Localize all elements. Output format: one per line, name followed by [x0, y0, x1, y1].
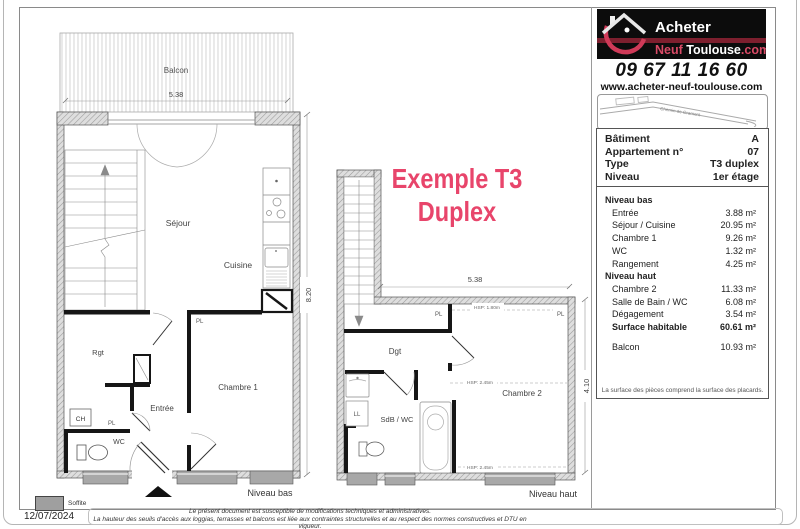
info-niveau-value: 1er étage [713, 171, 759, 184]
legal-disclaimer: Le présent document est susceptible de m… [90, 508, 530, 529]
dim-balcony-width: 5.38 [169, 90, 184, 99]
dim-top-haut-label: 5.38 [468, 275, 483, 284]
ch-label: CH [76, 416, 86, 423]
balcony-label: Balcon [164, 66, 188, 75]
niveau-bas-caption: Niveau bas [247, 488, 293, 498]
info-appartement-label: Appartement n° [605, 146, 683, 159]
section-niveau-haut: Niveau haut [605, 270, 756, 283]
balcony-area: Balcon 5.38 [60, 33, 293, 112]
ll-label: LL [354, 412, 361, 418]
entree-label: Entrée [150, 404, 174, 413]
hsp-1-label: HSP: 2.45m [467, 380, 493, 386]
row-sejour-label: Séjour / Cuisine [612, 219, 676, 232]
logo-acheter: Acheter [655, 19, 711, 36]
row-degagement-label: Dégagement [612, 308, 664, 321]
location-map: Chemin de Gramont [597, 94, 768, 130]
row-balcon-value: 10.93 m² [720, 341, 756, 354]
entrance-arrow [145, 486, 172, 497]
wc-fixtures [77, 445, 108, 460]
disclaimer-line2: La hauteur des seuils d'accès aux loggia… [90, 516, 530, 529]
logo-dotcom: .com [741, 43, 766, 57]
row-chambre2-value: 11.33 m² [721, 283, 756, 296]
plan-title-line2: Duplex [390, 195, 524, 228]
pl-right-label: PL [557, 312, 565, 318]
agency-logo[interactable]: Acheter Neuf Toulouse.com [597, 9, 766, 59]
dim-height-label: 8.20 [304, 288, 313, 303]
phone-number[interactable]: 09 67 11 16 60 [597, 60, 766, 82]
soffite-label: Soffite [68, 500, 86, 507]
shaft [134, 355, 150, 383]
document-date: 12/07/2024 [24, 511, 74, 522]
row-chambre1-value: 9.26 m² [725, 232, 756, 245]
sdb-label: SdB / WC [381, 415, 415, 424]
wc-label: WC [113, 439, 125, 446]
interior-doors-haut [384, 336, 474, 395]
floorplan-sheet: Balcon 5.38 [0, 0, 800, 529]
hsp-low-label: HSP: 1.80m [474, 305, 500, 311]
info-batiment-value: A [751, 133, 759, 146]
chambre1-label: Chambre 1 [218, 383, 258, 392]
dgt-label: Dgt [389, 347, 402, 356]
svg-text:Neuf Toulouse.com: Neuf Toulouse.com [655, 43, 766, 57]
row-chambre2-label: Chambre 2 [612, 283, 657, 296]
disclaimer-line1: Le présent document est susceptible de m… [90, 508, 530, 516]
sejour-label: Séjour [166, 218, 191, 228]
soffite-blocks [83, 471, 293, 484]
kitchen-fixtures [263, 168, 290, 288]
row-entree-value: 3.88 m² [725, 207, 756, 220]
pl-wc-label: PL [108, 421, 116, 427]
kitchen-duct [262, 290, 292, 312]
map-road-label: Chemin de Gramont [660, 106, 702, 117]
soffite-swatch [35, 496, 64, 511]
info-footnote: La surface des pièces comprend la surfac… [597, 387, 768, 394]
info-batiment-label: Bâtiment [605, 133, 650, 146]
staircase [65, 150, 145, 310]
dim-right-haut-label: 4.10 [582, 379, 591, 394]
row-balcon-label: Balcon [612, 341, 640, 354]
staircase-haut [344, 177, 374, 326]
plan-title: Exemple T3 Duplex [390, 162, 524, 228]
apartment-info-panel: BâtimentA Appartement n°07 TypeT3 duplex… [596, 128, 769, 399]
info-niveau-label: Niveau [605, 171, 639, 184]
row-rangement-value: 4.25 m² [725, 258, 756, 271]
pl-entree-label: PL [196, 319, 204, 325]
row-entree-label: Entrée [612, 207, 639, 220]
niveau-haut-caption: Niveau haut [529, 489, 578, 499]
rgt-label: Rgt [92, 348, 105, 357]
dim-height: 8.20 [300, 112, 314, 477]
row-sdb-value: 6.08 m² [725, 296, 756, 309]
row-chambre1-label: Chambre 1 [612, 232, 657, 245]
info-appartement-value: 07 [747, 146, 759, 159]
row-sejour-value: 20.95 m² [720, 219, 756, 232]
website-link[interactable]: www.acheter-neuf-toulouse.com [597, 81, 766, 93]
info-header: BâtimentA Appartement n°07 TypeT3 duplex… [597, 129, 768, 187]
ch-box: CH [70, 409, 91, 426]
chambre2-label: Chambre 2 [502, 389, 542, 398]
logo-toulouse: Toulouse [686, 43, 741, 57]
dim-top-haut: 5.38 [378, 275, 572, 289]
plan-niveau-bas: Balcon 5.38 [20, 25, 320, 503]
info-type-value: T3 duplex [710, 158, 759, 171]
plan-title-line1: Exemple T3 [390, 162, 524, 195]
entry-door [130, 442, 172, 479]
hsp-2-label: HSP: 2.45m [467, 465, 493, 471]
pl-left-label: PL [435, 312, 443, 318]
row-wc-label: WC [612, 245, 627, 258]
row-wc-value: 1.32 m² [725, 245, 756, 258]
row-surface-value: 60.61 m² [720, 321, 756, 334]
row-surface-label: Surface habitable [612, 321, 687, 334]
row-rangement-label: Rangement [612, 258, 659, 271]
logo-neuf: Neuf [655, 43, 686, 57]
house-icon [603, 15, 645, 52]
section-niveau-bas: Niveau bas [605, 194, 756, 207]
cuisine-label: Cuisine [224, 260, 253, 270]
row-degagement-value: 3.54 m² [725, 308, 756, 321]
info-type-label: Type [605, 158, 629, 171]
row-sdb-label: Salle de Bain / WC [612, 296, 688, 309]
dim-right-haut: 4.10 [579, 297, 591, 475]
info-details: Niveau bas Entrée3.88 m² Séjour / Cuisin… [597, 187, 768, 353]
